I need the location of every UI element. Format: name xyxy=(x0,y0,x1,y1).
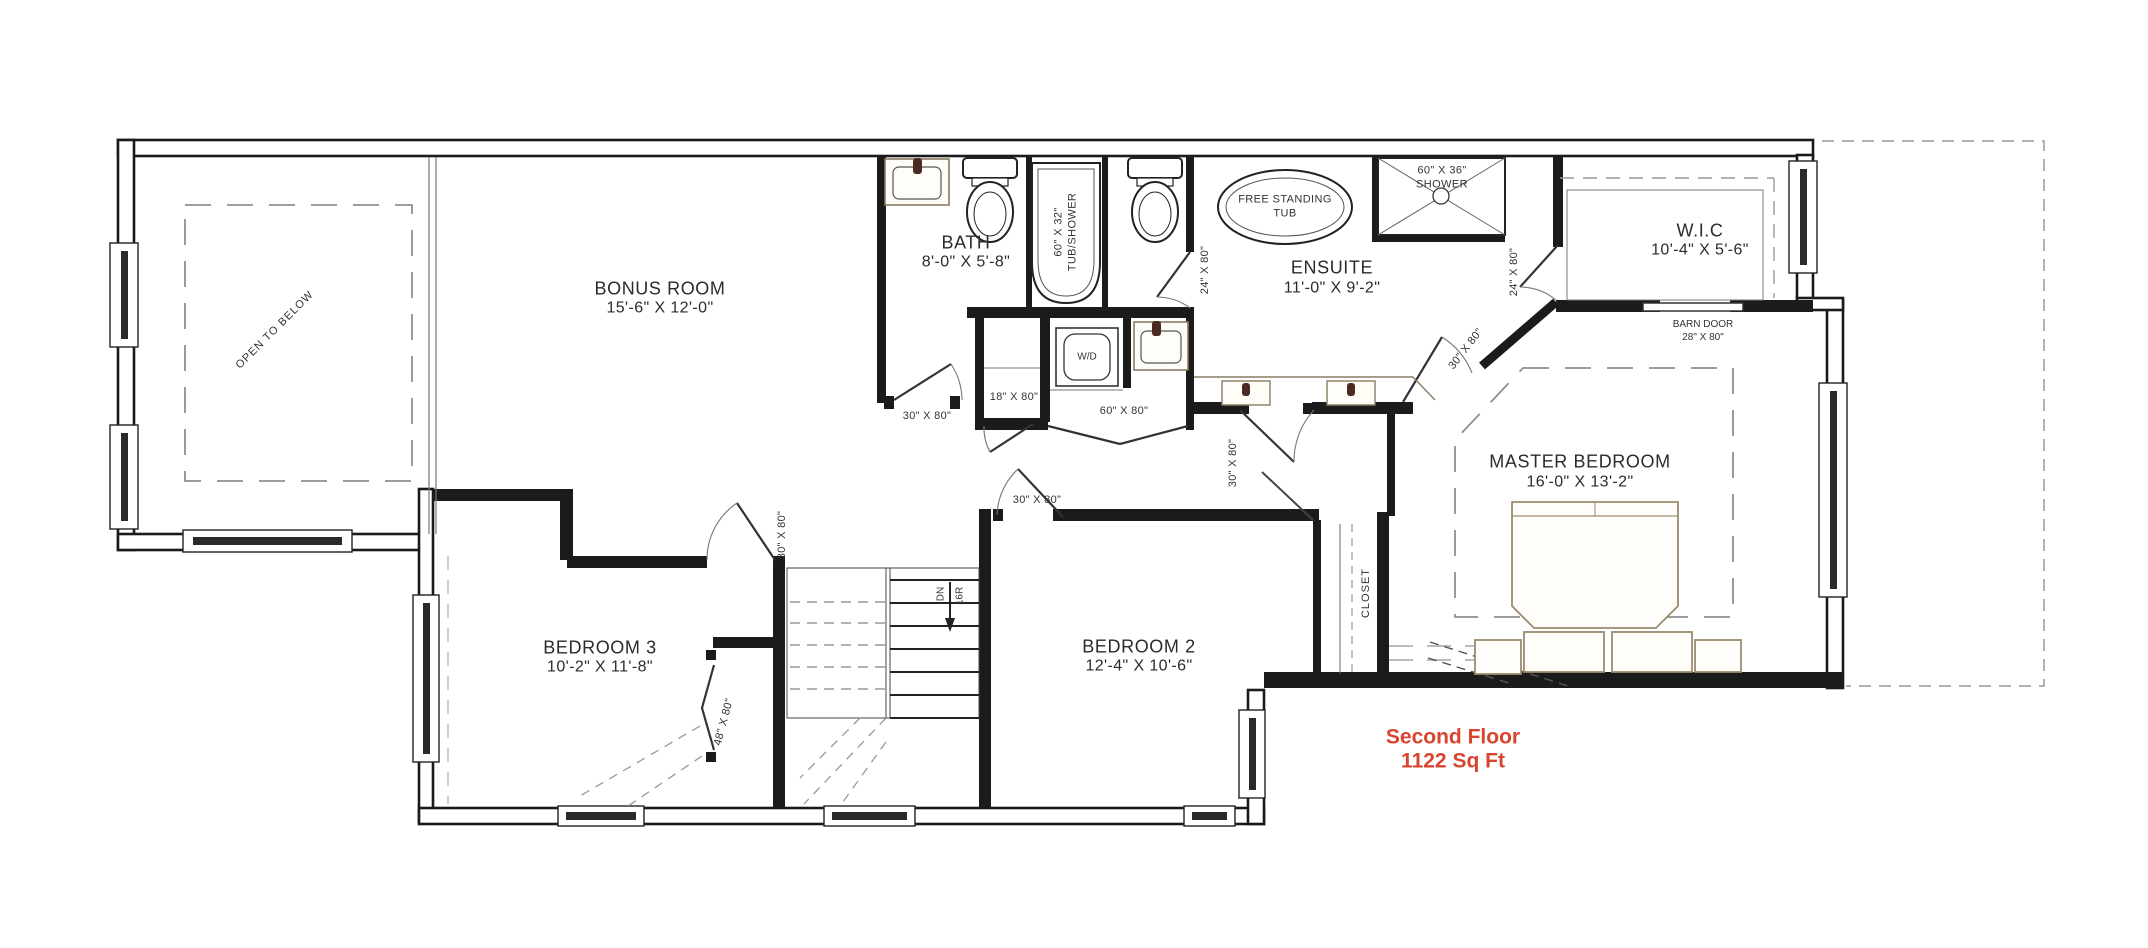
master-grey-dashes xyxy=(1389,646,1474,660)
washer-dryer-label: W/D xyxy=(1077,351,1096,364)
floor-plan-drawing xyxy=(0,0,2148,948)
diagonal-walls xyxy=(1482,302,1556,366)
shower-label: 60" X 36" SHOWER xyxy=(1416,164,1468,193)
floor-area: 1122 Sq Ft xyxy=(1401,747,1505,774)
wic-label: W.I.C xyxy=(1677,219,1724,242)
barn-door-label: BARN DOOR 28" X 80" xyxy=(1673,318,1734,344)
barn-door-size: 28" X 80" xyxy=(1682,332,1724,343)
shower-size: 60" X 36" xyxy=(1417,165,1466,177)
closet-label: CLOSET xyxy=(1359,568,1373,618)
door-label-bedroom2: 30" X 80" xyxy=(1013,493,1061,507)
barn-door-panel xyxy=(1643,303,1743,311)
master-bedroom-dims: 16'-0" X 13'-2" xyxy=(1526,473,1633,494)
stairs-riser-label: 16R xyxy=(954,587,967,605)
closet-rod xyxy=(1340,524,1352,674)
bath-toilet-icon xyxy=(963,158,1017,242)
barn-door-name: BARN DOOR xyxy=(1673,319,1734,330)
bath-dims: 8'-0" X 5'-8" xyxy=(922,253,1010,274)
tub-shower-label: 60" X 32" TUB/SHOWER xyxy=(1052,193,1081,272)
floor-plan: BONUS ROOM 15'-6" X 12'-0" OPEN TO BELOW… xyxy=(0,0,2148,948)
open-to-below-outline xyxy=(185,157,436,534)
hall-sink-icon xyxy=(1134,321,1188,370)
tub-shower-name: TUB/SHOWER xyxy=(1067,193,1079,272)
wc-toilet-icon xyxy=(1128,158,1182,242)
ensuite-vanity xyxy=(1194,377,1435,405)
bonus-room-label: BONUS ROOM xyxy=(594,277,725,300)
tub-shower-size: 60" X 32" xyxy=(1053,207,1065,256)
freestanding-tub-line1: FREE STANDING xyxy=(1238,194,1332,206)
bath-label: BATH xyxy=(941,231,990,254)
bedroom2-dims: 12'-4" X 10'-6" xyxy=(1085,657,1192,678)
freestanding-tub-label: FREE STANDING TUB xyxy=(1238,193,1332,222)
bedroom2-label: BEDROOM 2 xyxy=(1082,635,1195,658)
shower-name: SHOWER xyxy=(1416,179,1468,191)
stairs-dn-label: DN xyxy=(935,587,948,601)
bedroom3-dims: 10'-2" X 11'-8" xyxy=(547,658,653,679)
door-label-linen: 18" X 80" xyxy=(990,390,1038,404)
freestanding-tub-line2: TUB xyxy=(1273,208,1296,220)
door-label-wc: 24" X 80" xyxy=(1198,246,1212,294)
master-bedroom-label: MASTER BEDROOM xyxy=(1489,450,1670,473)
door-label-bath: 30" X 80" xyxy=(903,409,951,423)
wic-dims: 10'-4" X 5'-6" xyxy=(1651,241,1749,262)
door-label-wic: 24" X 80" xyxy=(1507,248,1521,296)
ensuite-dims: 11'-0" X 9'-2" xyxy=(1284,279,1381,300)
door-label-ensuite: 30" X 80" xyxy=(1226,439,1240,487)
master-south-wall xyxy=(1264,672,1843,688)
door-label-laundry: 60" X 80" xyxy=(1100,404,1148,418)
bath-sink-icon xyxy=(885,158,949,205)
bonus-room-dims: 15'-6" X 12'-0" xyxy=(606,299,713,320)
dashed-property-outline xyxy=(1822,141,2044,686)
bedroom3-label: BEDROOM 3 xyxy=(543,636,656,659)
bed-icon xyxy=(1475,502,1741,674)
ensuite-label: ENSUITE xyxy=(1291,256,1373,279)
door-label-bedroom3: 30" X 80" xyxy=(775,511,789,559)
wic-shelving xyxy=(1560,178,1774,300)
